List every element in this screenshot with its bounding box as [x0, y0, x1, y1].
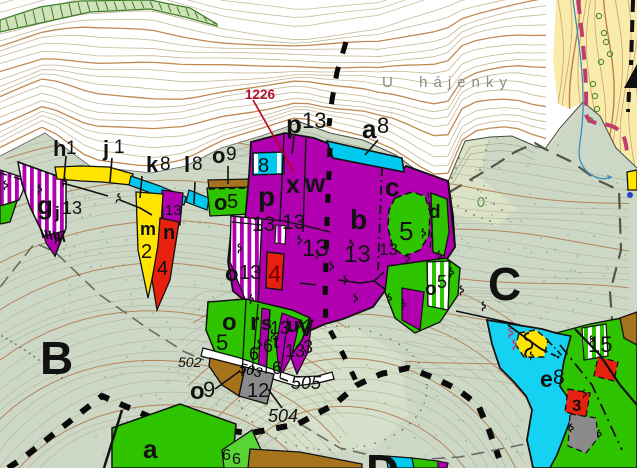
- svg-text:C: C: [488, 258, 521, 310]
- svg-text:3: 3: [303, 337, 313, 357]
- svg-text:k: k: [146, 152, 159, 177]
- svg-text:a: a: [143, 434, 158, 464]
- svg-text:j: j: [102, 136, 109, 161]
- svg-text:B: B: [40, 332, 73, 384]
- svg-text:13: 13: [239, 262, 261, 284]
- svg-text:4: 4: [157, 258, 168, 280]
- svg-text:d: d: [429, 202, 441, 223]
- svg-text:5: 5: [399, 216, 413, 246]
- svg-text:o: o: [214, 190, 227, 215]
- svg-text:13: 13: [379, 240, 398, 259]
- svg-text:6: 6: [272, 358, 282, 378]
- svg-text:13: 13: [62, 198, 82, 218]
- svg-text:h: h: [53, 136, 66, 161]
- svg-text:9: 9: [203, 377, 215, 402]
- svg-text:6: 6: [222, 447, 231, 464]
- svg-text:x: x: [286, 171, 300, 199]
- svg-text:8: 8: [258, 155, 269, 177]
- svg-text:r: r: [250, 309, 259, 336]
- svg-text:6: 6: [232, 451, 241, 468]
- svg-text:D: D: [366, 445, 399, 468]
- svg-text:2: 2: [141, 241, 152, 263]
- svg-text:13: 13: [344, 241, 371, 268]
- svg-text:8: 8: [192, 154, 203, 175]
- svg-text:a: a: [362, 114, 377, 144]
- svg-text:g: g: [37, 190, 53, 220]
- svg-text:502: 502: [178, 354, 202, 370]
- svg-text:j: j: [54, 203, 60, 222]
- svg-text:n: n: [163, 222, 175, 244]
- svg-text:15: 15: [588, 332, 612, 357]
- svg-text:13: 13: [302, 108, 326, 133]
- svg-text:o: o: [212, 143, 225, 168]
- svg-text:p: p: [286, 109, 302, 139]
- svg-text:5: 5: [216, 330, 228, 355]
- svg-text:6: 6: [263, 336, 273, 356]
- svg-text:8: 8: [377, 113, 389, 138]
- svg-text:8: 8: [160, 154, 171, 175]
- svg-text:5: 5: [227, 191, 238, 213]
- svg-text:13: 13: [165, 202, 182, 219]
- svg-text:e: e: [540, 366, 553, 392]
- svg-text:l: l: [184, 152, 190, 177]
- svg-text:t: t: [273, 332, 279, 352]
- svg-text:p: p: [258, 181, 275, 212]
- svg-text:505: 505: [291, 373, 322, 393]
- svg-text:8: 8: [553, 366, 565, 389]
- svg-text:1226: 1226: [245, 87, 276, 102]
- svg-text:m: m: [140, 219, 156, 239]
- svg-text:w: w: [304, 168, 326, 198]
- svg-text:c: c: [385, 172, 399, 202]
- svg-text:504: 504: [268, 406, 298, 426]
- svg-text:b: b: [350, 204, 367, 235]
- svg-text:9: 9: [226, 144, 237, 165]
- svg-text:1: 1: [114, 137, 125, 158]
- svg-text:13: 13: [282, 211, 305, 234]
- svg-text:4: 4: [268, 261, 281, 288]
- svg-text:13: 13: [302, 235, 329, 262]
- svg-text:12: 12: [247, 380, 269, 402]
- svg-text:5: 5: [437, 272, 447, 292]
- svg-text:o: o: [225, 261, 238, 286]
- svg-text:U hájenky: U hájenky: [382, 74, 513, 91]
- svg-text:1: 1: [66, 138, 77, 159]
- svg-text:o: o: [425, 279, 437, 300]
- svg-text:3: 3: [572, 396, 581, 415]
- svg-text:13: 13: [252, 213, 275, 236]
